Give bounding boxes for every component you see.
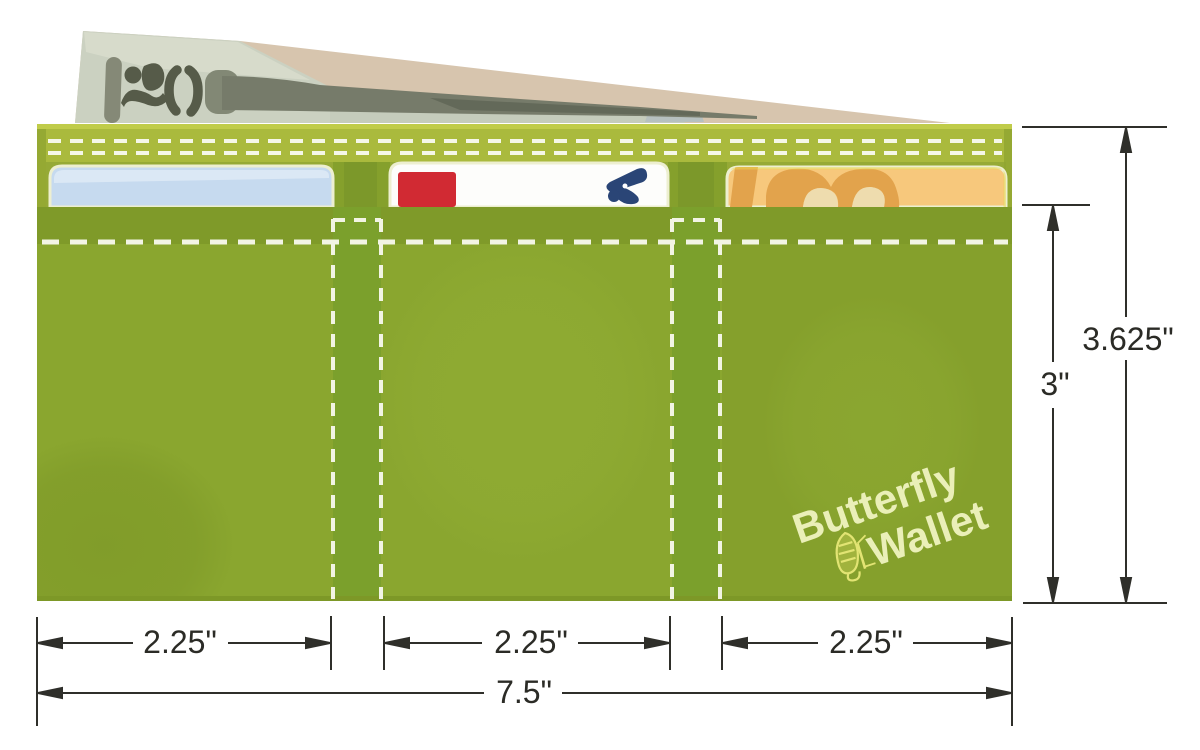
svg-text:7.5": 7.5" — [496, 674, 552, 710]
svg-text:3.625": 3.625" — [1082, 321, 1173, 357]
svg-text:3": 3" — [1040, 366, 1069, 402]
svg-text:2.25": 2.25" — [494, 624, 568, 660]
svg-text:2.25": 2.25" — [829, 624, 903, 660]
svg-text:2.25": 2.25" — [143, 624, 217, 660]
